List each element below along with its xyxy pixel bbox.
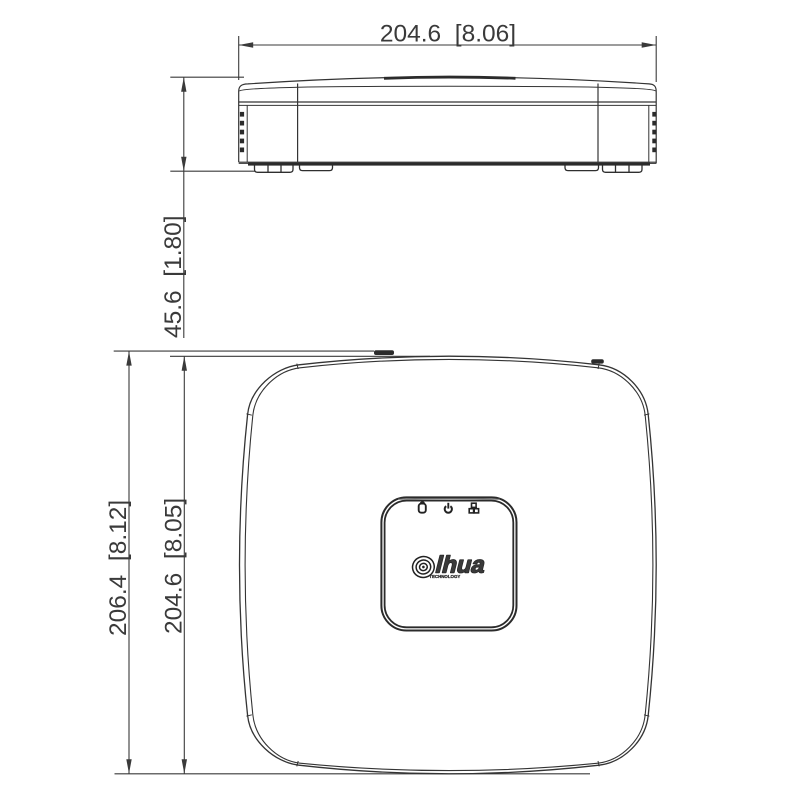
svg-text:45.6 [1.80]: 45.6 [1.80] xyxy=(160,215,187,338)
svg-text:206.4 [8.12]: 206.4 [8.12] xyxy=(105,500,132,636)
svg-text:TECHNOLOGY: TECHNOLOGY xyxy=(429,574,460,579)
svg-text:204.6 [8.05]: 204.6 [8.05] xyxy=(161,498,188,634)
svg-text:204.6 [8.06]: 204.6 [8.06] xyxy=(380,21,516,48)
